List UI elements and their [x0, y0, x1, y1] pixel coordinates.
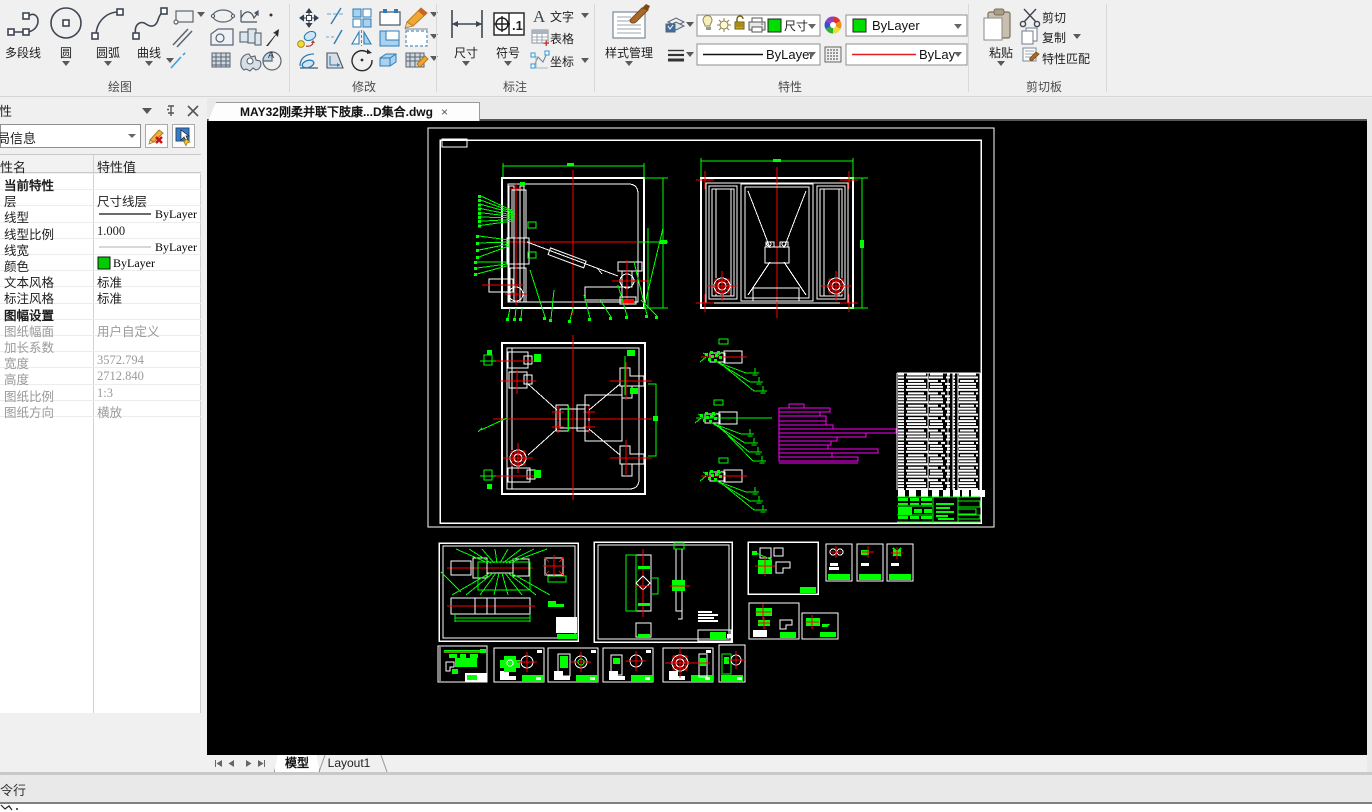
svg-text:A: A [268, 50, 274, 60]
svg-text:ByLayer: ByLayer [155, 240, 197, 254]
svg-text:ByLay: ByLay [919, 47, 956, 62]
svg-text:ByLayer: ByLayer [872, 18, 920, 33]
svg-text:ByLayer: ByLayer [113, 256, 155, 270]
svg-text:ByLayer: ByLayer [155, 207, 197, 221]
svg-text:A: A [533, 7, 546, 26]
svg-text:尺寸: 尺寸 [784, 19, 808, 33]
svg-text:+: + [543, 38, 549, 50]
svg-text:ByLayer: ByLayer [766, 47, 814, 62]
svg-text:.1: .1 [512, 18, 523, 33]
